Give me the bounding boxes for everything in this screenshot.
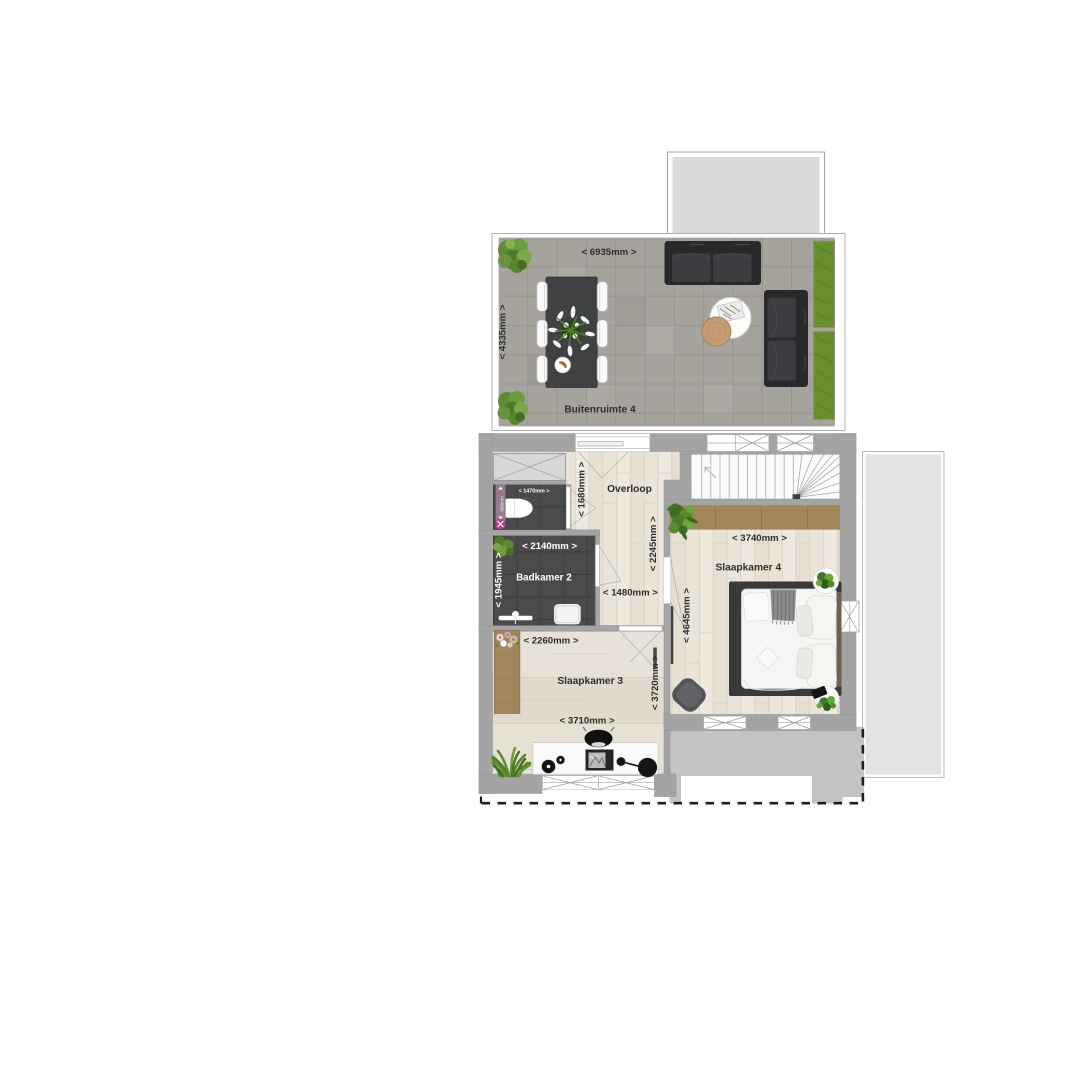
svg-text:Slaapkamer 3: Slaapkamer 3 bbox=[557, 676, 623, 687]
svg-text:< 2245mm >: < 2245mm > bbox=[648, 516, 659, 571]
svg-text:< 1945mm >: < 1945mm > bbox=[494, 552, 505, 607]
svg-text:900mm: 900mm bbox=[499, 496, 504, 511]
svg-text:Buitenruimte 4: Buitenruimte 4 bbox=[564, 405, 636, 416]
svg-text:< 1470mm >: < 1470mm > bbox=[519, 489, 550, 495]
svg-text:< 3710mm >: < 3710mm > bbox=[560, 715, 615, 726]
svg-text:< 4645mm >: < 4645mm > bbox=[682, 588, 693, 643]
svg-text:< 3720mm >: < 3720mm > bbox=[650, 655, 661, 710]
svg-text:< 3740mm >: < 3740mm > bbox=[732, 533, 787, 544]
svg-text:< 4335mm >: < 4335mm > bbox=[498, 304, 509, 359]
svg-text:Badkamer 2: Badkamer 2 bbox=[516, 573, 572, 584]
svg-text:< 6935mm >: < 6935mm > bbox=[582, 247, 637, 258]
svg-text:Overloop: Overloop bbox=[607, 484, 652, 495]
svg-text:< 1480mm >: < 1480mm > bbox=[603, 588, 658, 599]
svg-text:< 2260mm >: < 2260mm > bbox=[524, 636, 579, 647]
svg-text:Slaapkamer 4: Slaapkamer 4 bbox=[715, 562, 781, 573]
svg-text:< 2140mm >: < 2140mm > bbox=[522, 541, 577, 552]
svg-text:< 1680mm >: < 1680mm > bbox=[577, 461, 588, 516]
